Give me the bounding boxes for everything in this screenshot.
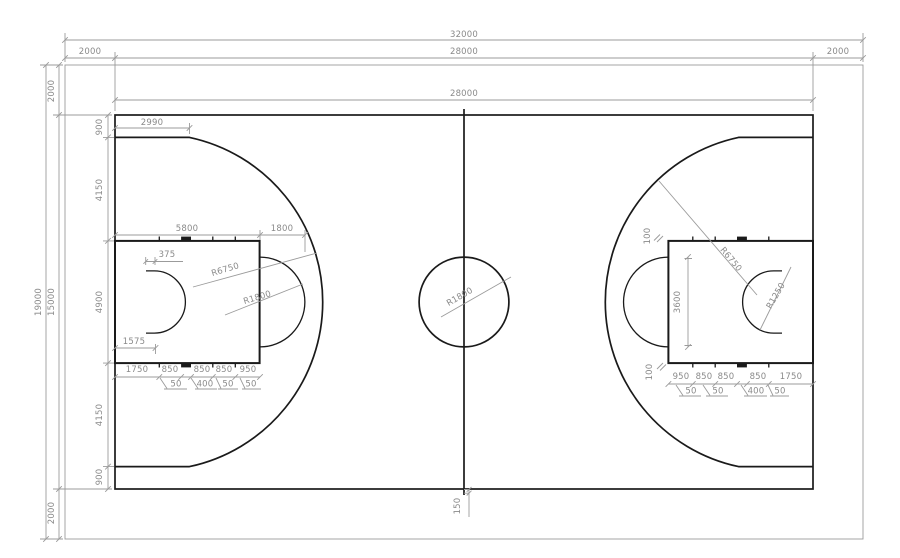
- dim-label-lane-r3: 850: [750, 372, 767, 382]
- dim-label-restricted-radius: R1250: [765, 281, 788, 311]
- dim-label-lanew-r0: 50: [685, 387, 696, 397]
- free-throw-semicircle-left: [260, 257, 305, 347]
- three-point-line-left: [115, 137, 323, 466]
- dim-label-lanew-r1: 50: [712, 387, 723, 397]
- three-point-line-right: [605, 137, 813, 466]
- dim-label-margin-bottom: 2000: [47, 502, 57, 524]
- dim-label-lane-l4: 950: [240, 365, 257, 375]
- dim-label-court-height: 15000: [47, 288, 57, 316]
- dim-label-lanew-l2: 50: [222, 380, 233, 390]
- free-throw-semicircle-right: [624, 257, 669, 347]
- dim-label-lanew-r3: 50: [774, 387, 785, 397]
- dim-label-band-3: 4150: [95, 404, 105, 426]
- dim-label-lane-l3: 850: [216, 365, 233, 375]
- dim-label-band-4: 900: [95, 469, 105, 486]
- dim-label-lane-r4: 1750: [780, 372, 802, 382]
- dimensions-left-court: 2990 5800 1800 375 R6750 R1800 1575 1750…: [112, 118, 317, 390]
- dim-label-lane-r1: 850: [696, 372, 713, 382]
- dim-label-band-1: 4150: [95, 179, 105, 201]
- dim-label-margin-top: 2000: [47, 80, 57, 102]
- dim-label-lane-r0: 950: [673, 372, 690, 382]
- dim-label-line-extension: 150: [453, 498, 463, 515]
- dim-label-lane-l0: 1750: [126, 365, 148, 375]
- dim-label-overall-height: 19000: [34, 288, 44, 316]
- dimensions-left: 19000 2000 15000 2000 900 4150 4900 4150…: [34, 62, 114, 542]
- court-geometry: [115, 109, 813, 495]
- dim-label-lane-l1: 850: [162, 365, 179, 375]
- dim-label-band-0: 900: [95, 119, 105, 136]
- dimensions-top: 32000 2000 28000 2000 28000: [62, 30, 866, 111]
- dim-label-lane-l2: 850: [194, 365, 211, 375]
- dim-label-lanew-r2: 400: [748, 387, 765, 397]
- dim-label-lane-r2: 850: [718, 372, 735, 382]
- dim-label-court-span: 28000: [450, 47, 478, 57]
- dim-label-margin-right: 2000: [827, 47, 849, 57]
- court-plan-drawing: 32000 2000 28000 2000 28000 19000 2000 1…: [0, 0, 900, 558]
- dim-label-edge-mark-top: 100: [643, 228, 653, 245]
- dim-label-margin-left: 2000: [79, 47, 101, 57]
- dim-label-lanew-l0: 50: [170, 380, 181, 390]
- dim-label-lanew-l1: 400: [197, 380, 214, 390]
- dim-label-threept-radius-left: R6750: [210, 261, 240, 279]
- dim-label-key-depth: 5800: [176, 224, 198, 234]
- dim-label-ft-radius-left: R1800: [242, 289, 272, 307]
- dim-label-backboard-rim: 375: [159, 250, 176, 260]
- dimensions-center: R1800 150: [441, 277, 511, 517]
- dim-label-overall-width: 32000: [450, 30, 478, 40]
- dim-label-ft-ext: 1800: [271, 224, 293, 234]
- dim-label-rim-baseline: 1575: [123, 337, 145, 347]
- dim-label-band-2: 4900: [95, 291, 105, 313]
- dim-label-threept-radius-right: R6750: [718, 246, 744, 274]
- dim-label-edge-mark-bottom: 100: [645, 364, 655, 381]
- cad-canvas: 32000 2000 28000 2000 28000 19000 2000 1…: [0, 0, 900, 558]
- dim-label-corner-offset: 2990: [141, 118, 163, 128]
- dim-label-center-radius: R1800: [445, 286, 475, 309]
- restricted-arc-left: [146, 271, 185, 333]
- dim-label-ft-line-length: 3600: [673, 291, 683, 313]
- dim-label-court-inner: 28000: [450, 89, 478, 99]
- dim-label-lanew-l3: 50: [245, 380, 256, 390]
